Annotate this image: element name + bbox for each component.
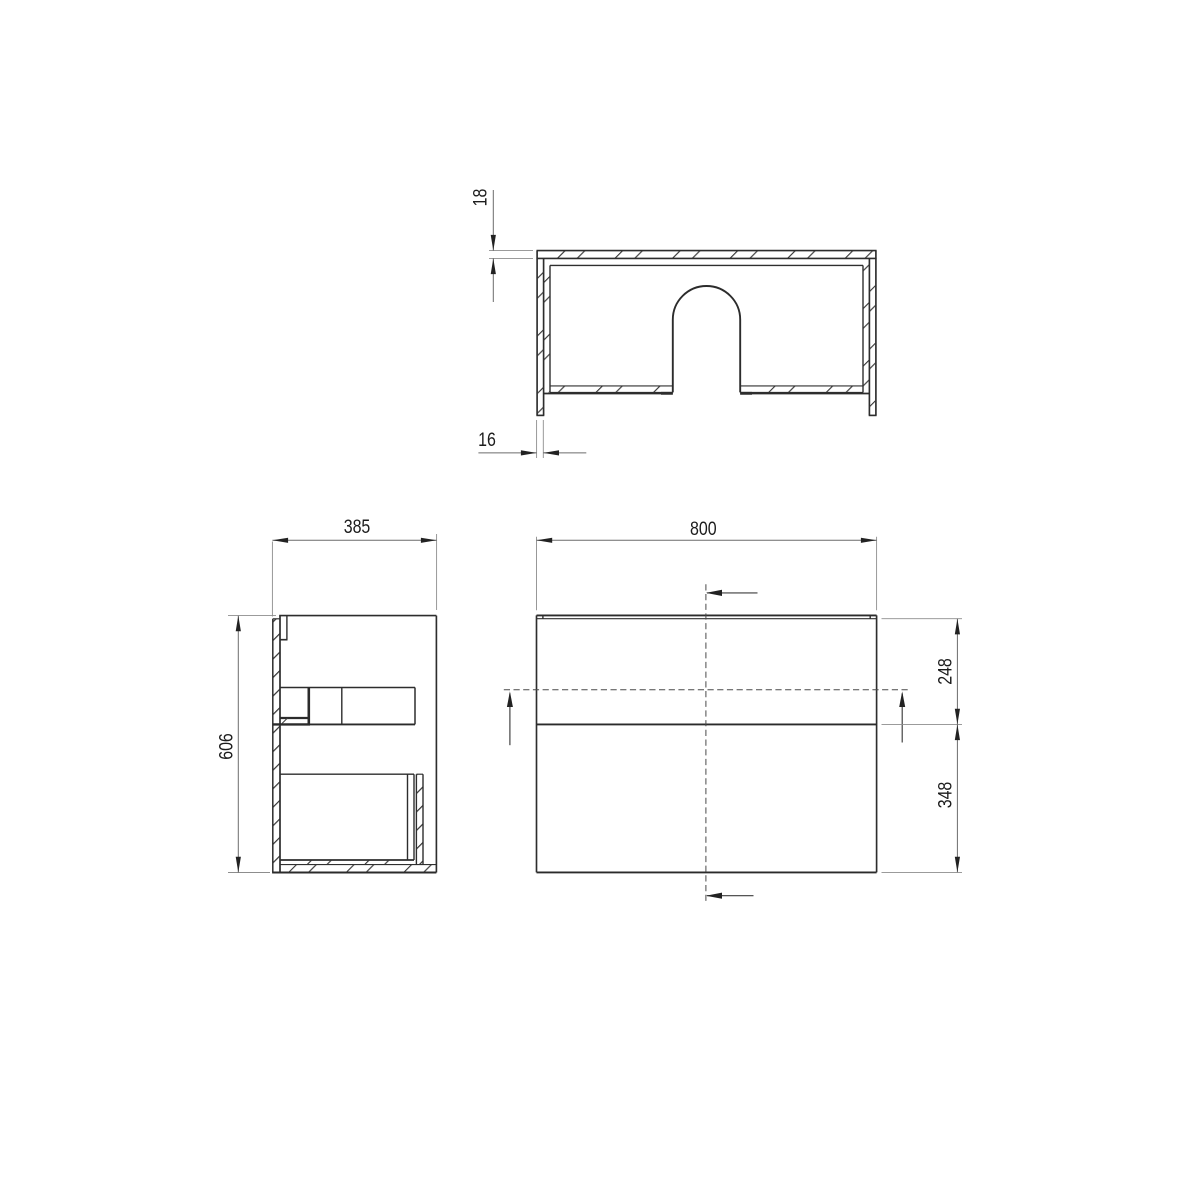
svg-text:18: 18: [469, 189, 491, 207]
svg-text:248: 248: [934, 658, 956, 685]
svg-text:16: 16: [478, 429, 496, 451]
svg-text:800: 800: [690, 518, 717, 540]
svg-text:385: 385: [344, 516, 371, 538]
svg-text:348: 348: [934, 782, 956, 809]
svg-text:606: 606: [215, 733, 237, 760]
